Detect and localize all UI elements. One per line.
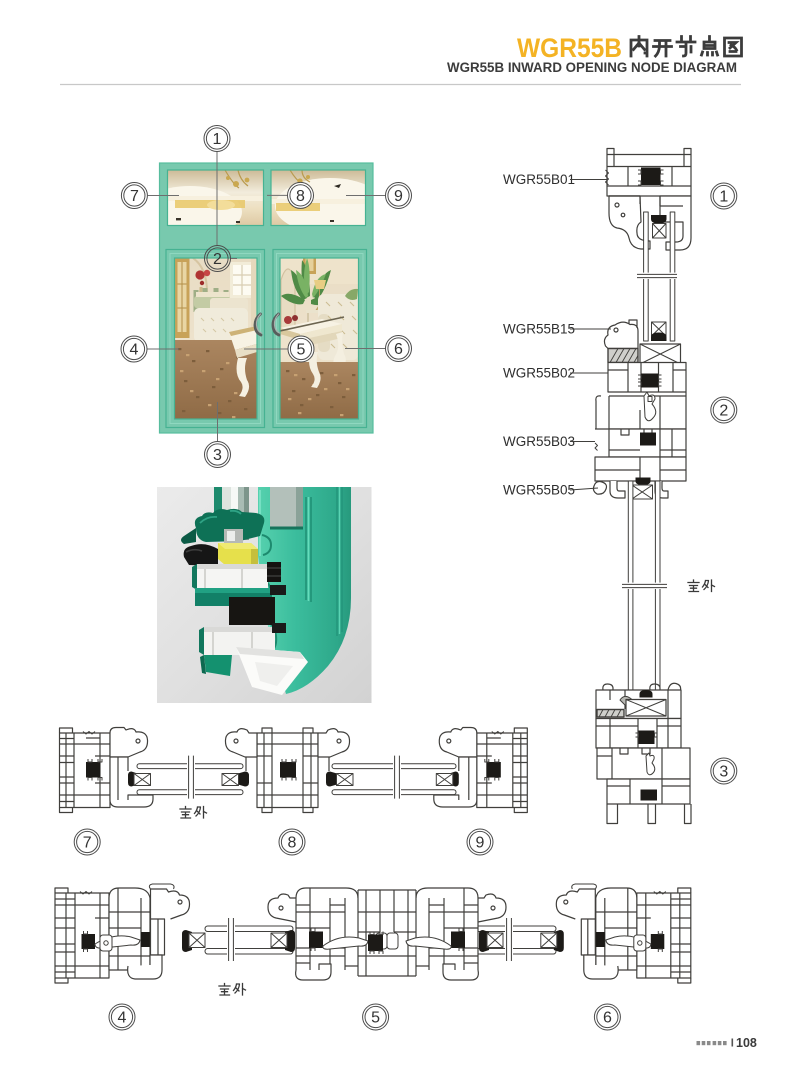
svg-text:9: 9 xyxy=(476,835,485,852)
svg-text:1: 1 xyxy=(213,131,222,148)
svg-text:3: 3 xyxy=(213,447,222,464)
svg-text:7: 7 xyxy=(83,835,92,852)
svg-text:4: 4 xyxy=(118,1010,127,1027)
svg-text:WGR55B15: WGR55B15 xyxy=(503,322,575,337)
svg-text:8: 8 xyxy=(288,835,297,852)
svg-text:9: 9 xyxy=(394,188,403,205)
svg-text:6: 6 xyxy=(603,1010,612,1027)
svg-text:WGR55B01: WGR55B01 xyxy=(503,172,575,187)
svg-text:8: 8 xyxy=(296,188,305,205)
svg-text:WGR55B INWARD OPENING NODE DIA: WGR55B INWARD OPENING NODE DIAGRAM xyxy=(447,60,737,75)
svg-text:WGR55B03: WGR55B03 xyxy=(503,434,575,449)
svg-text:2: 2 xyxy=(213,251,222,268)
svg-text:WGR55B02: WGR55B02 xyxy=(503,366,575,381)
svg-text:2: 2 xyxy=(719,403,728,420)
svg-text:5: 5 xyxy=(371,1010,380,1027)
svg-text:5: 5 xyxy=(297,342,306,359)
svg-text:WGR55B05: WGR55B05 xyxy=(503,483,575,498)
svg-text:7: 7 xyxy=(130,188,139,205)
svg-text:6: 6 xyxy=(394,341,403,358)
svg-text:1: 1 xyxy=(719,189,728,206)
svg-text:3: 3 xyxy=(719,764,728,781)
svg-text:WGR55B: WGR55B xyxy=(517,33,622,63)
svg-text:108: 108 xyxy=(736,1036,757,1050)
svg-text:4: 4 xyxy=(130,342,139,359)
